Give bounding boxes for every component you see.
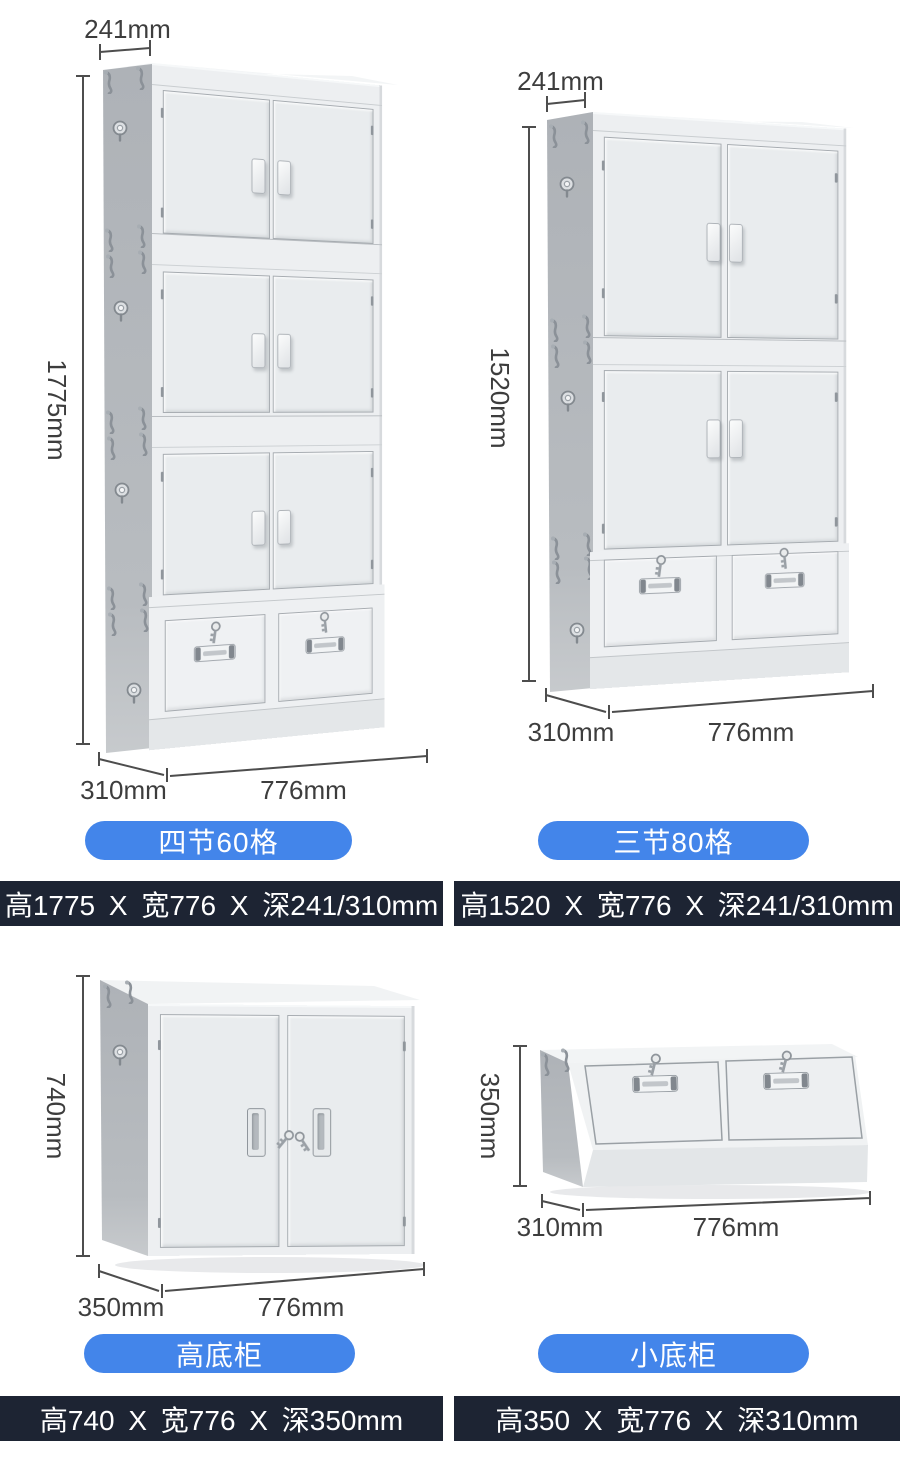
key-icon	[275, 1129, 295, 1151]
flap-handle	[764, 1072, 809, 1089]
flap-handle	[765, 571, 805, 589]
key-icon	[294, 1131, 313, 1153]
hinge	[371, 126, 374, 136]
door-handle	[277, 510, 291, 545]
dim-label-top-depth: 241mm	[513, 66, 608, 96]
hinge	[158, 1218, 161, 1228]
drawer-flap	[585, 1062, 722, 1144]
unit-seam	[152, 415, 382, 417]
cabinet-front-face	[593, 112, 846, 688]
product-dimension-sheet: 241mm 1775mm 310mm 776mm 四节60格 高1775 X 宽…	[0, 0, 900, 1480]
cabinet-side-face	[100, 980, 148, 1256]
key-icon	[317, 610, 334, 637]
cabinet-front-face	[152, 63, 382, 749]
hinge	[835, 294, 838, 304]
hinge	[602, 392, 605, 402]
product-badge: 三节80格	[538, 821, 809, 860]
dim-label-width: 776mm	[688, 1212, 784, 1242]
cabinet-door	[604, 137, 722, 338]
product-spec-bar: 高1775 X 宽776 X 深241/310mm	[0, 881, 443, 926]
flap-handle	[306, 636, 345, 655]
unit-seam	[152, 444, 382, 448]
dim-label-bottom-depth: 310mm	[523, 717, 619, 747]
cabinet-front-face	[148, 1004, 414, 1256]
dim-label-height: 1775mm	[42, 340, 72, 480]
product-spec-bar: 高350 X 宽776 X 深310mm	[454, 1396, 900, 1441]
dim-label-height: 1520mm	[485, 328, 515, 468]
drawer-flap	[726, 1057, 862, 1140]
hinge	[158, 1040, 161, 1050]
door-handle	[277, 160, 291, 196]
product-badge: 小底柜	[538, 1334, 809, 1373]
dim-label-height: 740mm	[41, 1046, 71, 1186]
hinge	[835, 392, 838, 401]
hinge	[371, 296, 374, 305]
hinge	[161, 387, 164, 397]
hinge	[161, 472, 164, 482]
hinge	[602, 160, 605, 170]
hinge	[403, 1217, 406, 1227]
cabinet-top-face	[100, 980, 420, 1004]
product-badge: 高底柜	[84, 1334, 355, 1373]
base-lip	[149, 594, 385, 608]
dim-label-width: 776mm	[253, 1292, 349, 1322]
door-handle	[729, 224, 743, 263]
product-spec-bar: 高1520 X 宽776 X 深241/310mm	[454, 881, 900, 926]
hinge	[403, 1041, 406, 1051]
hinge	[602, 288, 605, 298]
key-icon	[776, 546, 793, 573]
hinge	[161, 108, 164, 118]
dim-label-width: 776mm	[256, 775, 351, 805]
hinge	[161, 208, 164, 218]
hinge	[371, 468, 374, 477]
cabinet-door	[727, 144, 838, 340]
product-badge: 四节60格	[85, 821, 352, 860]
cabinet-base-unit	[149, 584, 385, 749]
cabinet-base-unit	[590, 543, 849, 688]
door-handle	[707, 223, 721, 262]
unit-seam	[593, 364, 846, 367]
hinge	[371, 219, 374, 229]
hinge	[161, 569, 164, 579]
door-handle	[247, 1108, 266, 1157]
dim-label-bottom-depth: 350mm	[73, 1292, 169, 1322]
keys	[265, 1122, 324, 1182]
shadow	[115, 1257, 425, 1273]
dim-label-bottom-depth: 310mm	[512, 1212, 608, 1242]
hinge	[371, 388, 374, 397]
hinge	[371, 560, 374, 569]
hinge	[835, 517, 838, 527]
hinge	[835, 173, 838, 183]
hinge	[161, 289, 164, 299]
cabinet-door	[727, 371, 838, 546]
door-handle	[252, 333, 266, 368]
door-handle	[252, 511, 266, 546]
dim-label-height: 350mm	[475, 1046, 505, 1186]
shadow	[550, 1185, 870, 1199]
door-handle	[707, 419, 721, 458]
dim-label-width: 776mm	[703, 717, 799, 747]
cabinet-side-face	[103, 64, 152, 753]
product-spec-bar: 高740 X 宽776 X 深350mm	[0, 1396, 443, 1441]
plinth	[583, 1145, 868, 1187]
door-handle	[277, 334, 291, 369]
door-handle	[729, 419, 743, 458]
dim-label-top-depth: 241mm	[80, 14, 175, 44]
door-handle	[252, 158, 266, 194]
cabinet-door	[604, 370, 722, 550]
dim-label-bottom-depth: 310mm	[76, 775, 171, 805]
flap-handle	[633, 1075, 678, 1092]
hinge	[602, 524, 605, 534]
